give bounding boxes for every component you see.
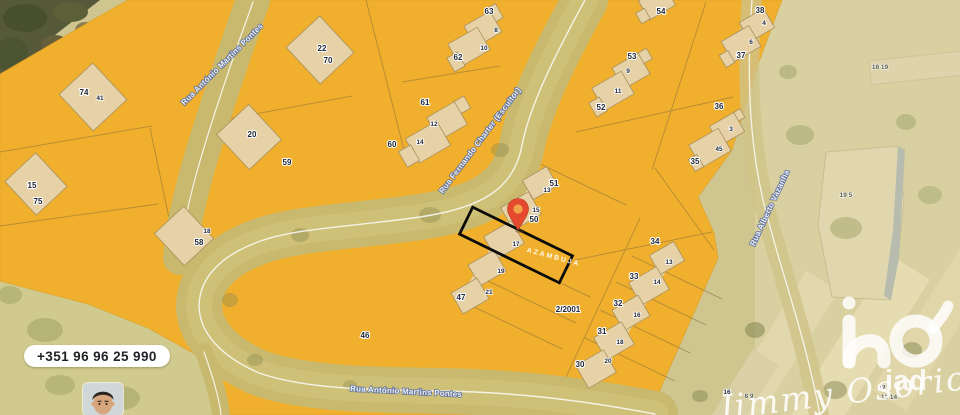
lot-label: 46	[361, 331, 370, 340]
lot-label: 20	[248, 130, 257, 139]
agent-photo	[83, 383, 123, 415]
lot-label: 37	[737, 51, 746, 60]
lot-label: 53	[628, 52, 637, 61]
lot-label: 21	[485, 289, 493, 296]
lot-label: 14	[653, 279, 661, 286]
lot-label: 41	[96, 95, 104, 102]
lot-label: 22	[318, 44, 327, 53]
lot-label: 19	[497, 268, 505, 275]
lot-label: 14	[416, 139, 424, 146]
lot-label: 10	[480, 45, 488, 52]
lot-label: 59	[283, 158, 292, 167]
lot-label: 52	[597, 103, 606, 112]
lot-label: 34	[651, 237, 660, 246]
lot-label: 17	[512, 241, 520, 248]
lot-label: 54	[657, 7, 666, 16]
map-canvas[interactable]: AZAMBUJA Rua António Martins PontesRua F…	[0, 0, 960, 415]
lot-label: 45	[715, 146, 723, 153]
lot-label: 13	[665, 259, 673, 266]
lot-label: 4	[762, 20, 766, 27]
lot-label: 9	[626, 68, 630, 75]
lot-label: 2/2001	[556, 305, 581, 314]
lot-label: 62	[454, 53, 463, 62]
lot-label: 63	[485, 7, 494, 16]
lot-label: 18	[203, 228, 211, 235]
lot-label: 32	[614, 299, 623, 308]
lot-label: 13	[543, 187, 551, 194]
lot-label: 19 5	[840, 192, 853, 199]
lot-label: 58	[195, 238, 204, 247]
lot-label: 8	[494, 27, 498, 34]
lot-label: 74	[80, 88, 89, 97]
lot-label: 20	[604, 358, 612, 365]
lot-label: 33	[630, 272, 639, 281]
lot-label: 31	[598, 327, 607, 336]
lot-label: 16	[633, 312, 641, 319]
lot-label: 30	[576, 360, 585, 369]
lot-label: 18	[616, 339, 624, 346]
phone-number: +351 96 96 25 990	[37, 349, 157, 364]
lot-label: 38	[756, 6, 765, 15]
lot-label: 15	[28, 181, 37, 190]
lot-label: 51	[550, 179, 559, 188]
lot-label: 18 19	[872, 64, 889, 71]
lot-label: 70	[324, 56, 333, 65]
lot-label: 47	[457, 293, 466, 302]
lot-label: 11	[615, 88, 622, 95]
lot-label: 36	[715, 102, 724, 111]
lot-label: 50	[530, 215, 539, 224]
lot-label: 15	[532, 207, 540, 214]
lot-label: 12	[430, 121, 438, 128]
phone-badge: +351 96 96 25 990	[24, 345, 170, 367]
lot-label: 60	[388, 140, 397, 149]
lot-label: 3	[729, 126, 733, 133]
lot-label: 75	[34, 197, 43, 206]
lot-label: 61	[421, 98, 430, 107]
lot-label: 35	[691, 157, 700, 166]
lot-label: 6	[749, 39, 753, 46]
